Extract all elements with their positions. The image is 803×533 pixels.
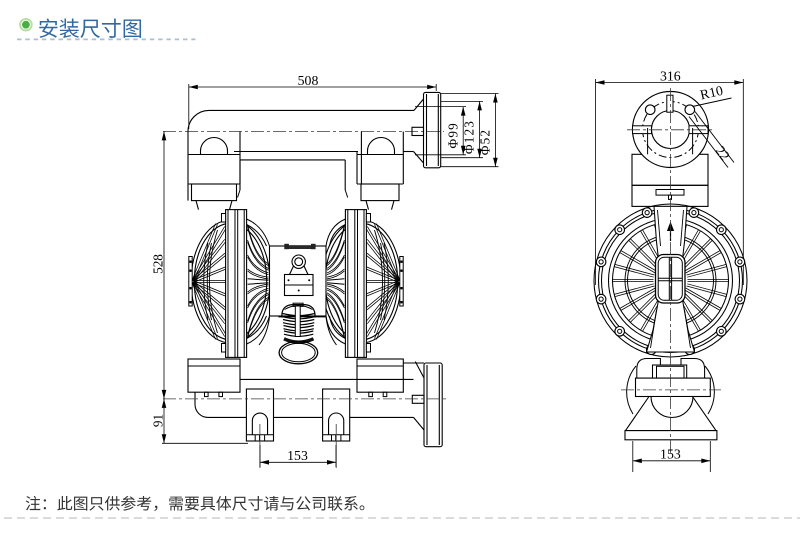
svg-text:316: 316 — [660, 68, 681, 83]
svg-text:22: 22 — [712, 143, 732, 163]
svg-text:508: 508 — [298, 73, 319, 88]
svg-text:Φ123: Φ123 — [462, 120, 477, 154]
svg-text:153: 153 — [660, 447, 681, 462]
svg-text:91: 91 — [150, 414, 165, 427]
svg-text:528: 528 — [150, 254, 165, 274]
svg-text:Φ99: Φ99 — [445, 122, 460, 148]
svg-text:153: 153 — [287, 448, 308, 463]
svg-text:R10: R10 — [699, 83, 725, 103]
svg-text:Φ52: Φ52 — [478, 129, 493, 155]
